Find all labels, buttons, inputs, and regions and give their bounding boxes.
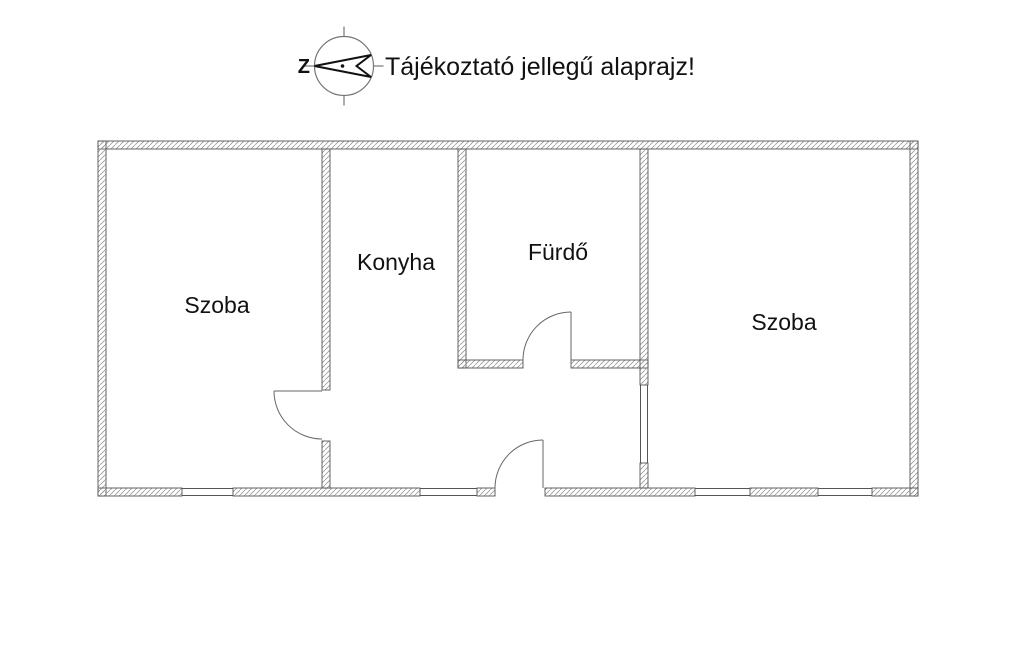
- door-furdo: [523, 312, 571, 360]
- doors: [274, 312, 571, 488]
- floorplan: Z Tájékoztató jellegű alaprajz!: [0, 0, 1024, 645]
- wall-bottom-seg4: [545, 488, 695, 496]
- wall-hall-szoba-lower: [640, 463, 648, 488]
- wall-right: [910, 141, 918, 496]
- windows: [182, 385, 872, 496]
- compass-north-label: Z: [298, 56, 310, 78]
- compass-icon: Z: [298, 27, 384, 106]
- wall-furdo-bottom-right: [571, 360, 648, 368]
- compass-center-dot: [341, 64, 345, 68]
- interior-walls: [322, 149, 648, 488]
- wall-furdo-bottom-left: [458, 360, 523, 368]
- wall-left: [98, 141, 106, 496]
- wall-bottom-seg5: [750, 488, 818, 496]
- window-szoba-right-1: [695, 489, 750, 496]
- doorway-opening-hall-szoba: [641, 385, 648, 463]
- wall-konyha-furdo: [458, 149, 466, 368]
- room-label-furdo: Fürdő: [528, 239, 588, 265]
- window-hall: [420, 489, 477, 496]
- door-swing-arc: [274, 391, 322, 439]
- door-szoba-left: [274, 391, 322, 439]
- wall-bottom-seg3: [477, 488, 495, 496]
- door-swing-arc: [523, 312, 571, 360]
- wall-top: [98, 141, 918, 149]
- room-label-szoba-right: Szoba: [751, 309, 816, 335]
- wall-szoba-konyha-lower: [322, 441, 330, 488]
- window-szoba-right-2: [818, 489, 872, 496]
- room-labels: Szoba Konyha Fürdő Szoba: [184, 239, 816, 335]
- wall-bottom-seg6: [872, 488, 918, 496]
- page: Z Tájékoztató jellegű alaprajz!: [0, 0, 1024, 645]
- wall-bottom-seg2: [233, 488, 420, 496]
- window-szoba-left: [182, 489, 233, 496]
- room-label-szoba-left: Szoba: [184, 292, 249, 318]
- door-swing-arc: [495, 440, 543, 488]
- page-title: Tájékoztató jellegű alaprajz!: [385, 53, 695, 81]
- wall-hall-szoba-upper: [640, 149, 648, 385]
- door-entrance: [495, 440, 543, 488]
- wall-bottom-seg1: [98, 488, 182, 496]
- wall-szoba-konyha-upper: [322, 149, 330, 390]
- room-label-konyha: Konyha: [357, 249, 435, 275]
